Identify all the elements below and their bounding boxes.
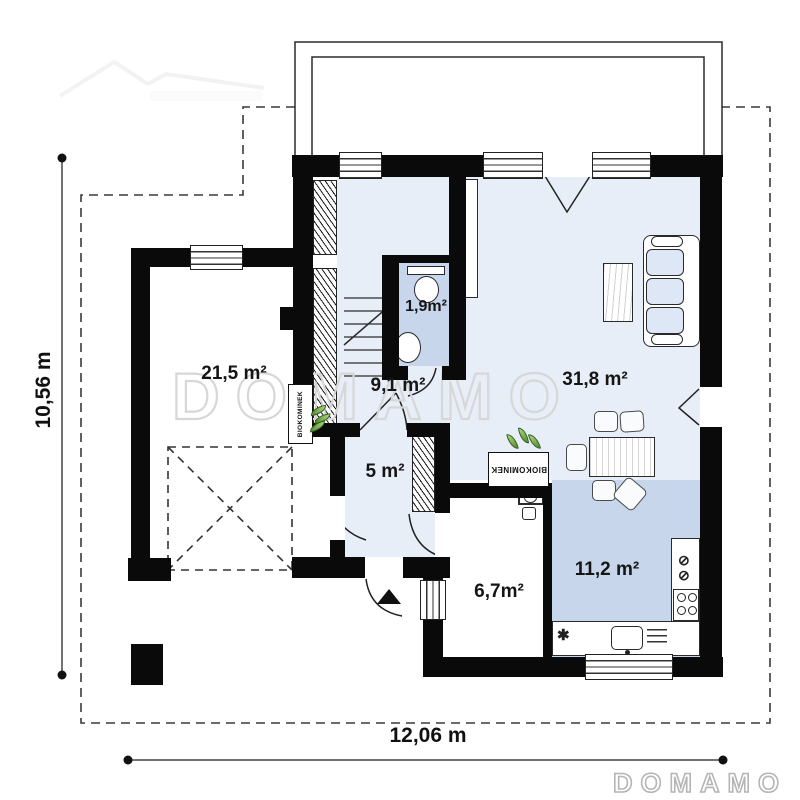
hob-crossed-circle-icon: ⊘	[678, 553, 690, 567]
plan-linework	[0, 0, 800, 800]
utility-fixture-tank	[522, 507, 536, 520]
stove-burner-icon	[688, 593, 697, 602]
hob-crossed-circle-icon: ⊘	[678, 568, 690, 582]
bio-fireplace-flames-icon	[293, 406, 331, 432]
dining-chair	[592, 480, 616, 501]
garage-area-label: 21,5 m²	[201, 363, 266, 385]
wall-hall-north-right	[407, 423, 450, 437]
wall-kitchen-west	[543, 483, 552, 657]
sofa-cushion	[646, 278, 684, 305]
hall-door-arc	[396, 393, 407, 430]
stove-burner-icon	[677, 606, 686, 615]
utility-door-opening	[435, 513, 450, 557]
window	[420, 580, 446, 620]
wall-garage-left	[131, 248, 150, 581]
living-east-door-leaf	[679, 389, 699, 425]
hall-area-label: 9,1 m²	[371, 375, 426, 397]
wall-bottom	[423, 657, 723, 677]
faint-roof-logo-icon	[60, 62, 264, 96]
entrance-arrow-icon	[377, 589, 401, 604]
terrace-door-leaf	[545, 176, 590, 212]
carport-dashed-square	[168, 447, 292, 570]
living-room-area-label: 31,8 m²	[562, 369, 627, 391]
terrace-door-opening	[543, 155, 592, 177]
wall-hall-south-left	[292, 557, 365, 578]
terrace-outline	[295, 42, 722, 157]
garage-door-opening	[330, 496, 345, 540]
dining-chair	[566, 444, 587, 471]
kitchen-area-label: 11,2 m²	[575, 559, 639, 581]
stove-burner-icon	[688, 606, 697, 615]
wall-garage-stub	[128, 558, 171, 581]
living-east-door-opening	[700, 387, 722, 427]
wall-garage-pier	[280, 307, 313, 330]
counter-star-icon: ✱	[557, 628, 570, 643]
coffee-table	[603, 263, 633, 322]
sofa-cushion	[646, 249, 684, 276]
wardrobe-strip	[412, 430, 435, 512]
floor-plan-canvas: ⊘ ⊘ ✱ DOMAMO BIOKOMINEK	[0, 0, 800, 800]
wall-living-west	[449, 175, 466, 380]
wall-hall-south-right	[403, 557, 443, 578]
wardrobe-strip	[313, 180, 337, 255]
window	[585, 654, 673, 680]
bathroom-area-label: 1,9m²	[405, 298, 447, 316]
wall-bath-top	[382, 255, 466, 263]
toilet-cistern	[407, 266, 445, 275]
sofa-cushion	[646, 307, 684, 334]
entry-area-label: 5 m²	[365, 461, 404, 483]
wall-bath-left	[382, 255, 399, 380]
bio-fireplace-label: BIOKOMINEK	[491, 465, 547, 474]
utility-area-label: 6,7m²	[474, 581, 524, 603]
width-dimension-label: 12,06 m	[348, 724, 508, 748]
carport-pillar	[131, 644, 163, 685]
dining-chair	[594, 411, 618, 432]
window	[483, 152, 543, 179]
bio-fireplace-flames-icon	[506, 427, 546, 457]
height-dimension-label: 10,56 m	[32, 330, 56, 450]
window	[339, 152, 382, 179]
dining-table	[589, 437, 655, 477]
sofa-armrest	[651, 334, 683, 345]
kitchen-sink-bowl	[611, 626, 643, 650]
bio-fireplace-box: BIOKOMINEK	[488, 452, 549, 487]
stove-burner-icon	[677, 593, 686, 602]
window	[592, 152, 651, 179]
dining-chair	[619, 410, 644, 433]
sofa-armrest	[651, 236, 683, 247]
window	[190, 245, 243, 270]
hall-door-leaf	[360, 393, 396, 430]
kitchen-sink-drainer	[647, 629, 667, 647]
wall-bath-bottom-right	[442, 366, 466, 380]
